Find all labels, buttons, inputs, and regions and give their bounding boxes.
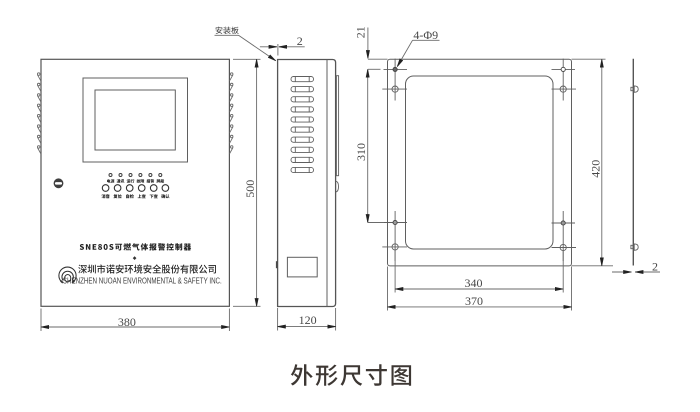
svg-text:310: 310 [354,143,368,161]
svg-text:340: 340 [465,276,483,290]
svg-text:370: 370 [465,294,483,308]
svg-text:120: 120 [299,313,317,327]
svg-text:380: 380 [118,315,136,329]
svg-text:2: 2 [297,34,303,48]
svg-text:500: 500 [243,180,257,198]
svg-text:4-Φ9: 4-Φ9 [413,28,438,42]
svg-text:SHENZHEN NUOAN ENVIRONMENTAL &: SHENZHEN NUOAN ENVIRONMENTAL & SAFETY IN… [63,277,222,286]
svg-text:2: 2 [652,260,658,274]
svg-text:21: 21 [354,26,368,38]
svg-text:420: 420 [588,160,602,178]
